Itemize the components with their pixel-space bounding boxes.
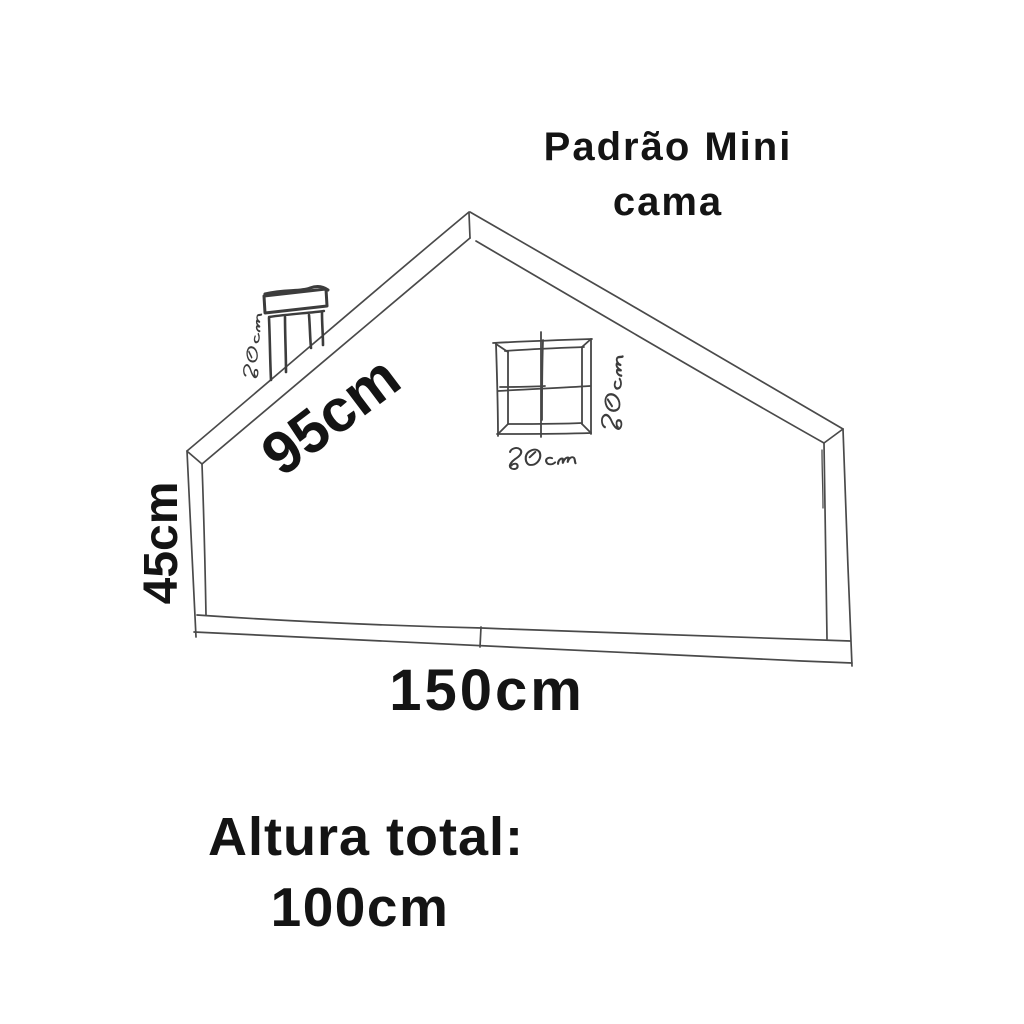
svg-text:95cm: 95cm [249, 343, 412, 489]
svg-text:45cm: 45cm [135, 482, 188, 605]
svg-text:cama: cama [613, 180, 723, 224]
svg-text:100cm: 100cm [271, 876, 450, 938]
svg-text:Padrão Mini: Padrão Mini [544, 125, 793, 169]
svg-text:Altura total:: Altura total: [208, 807, 524, 867]
svg-text:150cm: 150cm [389, 658, 585, 723]
